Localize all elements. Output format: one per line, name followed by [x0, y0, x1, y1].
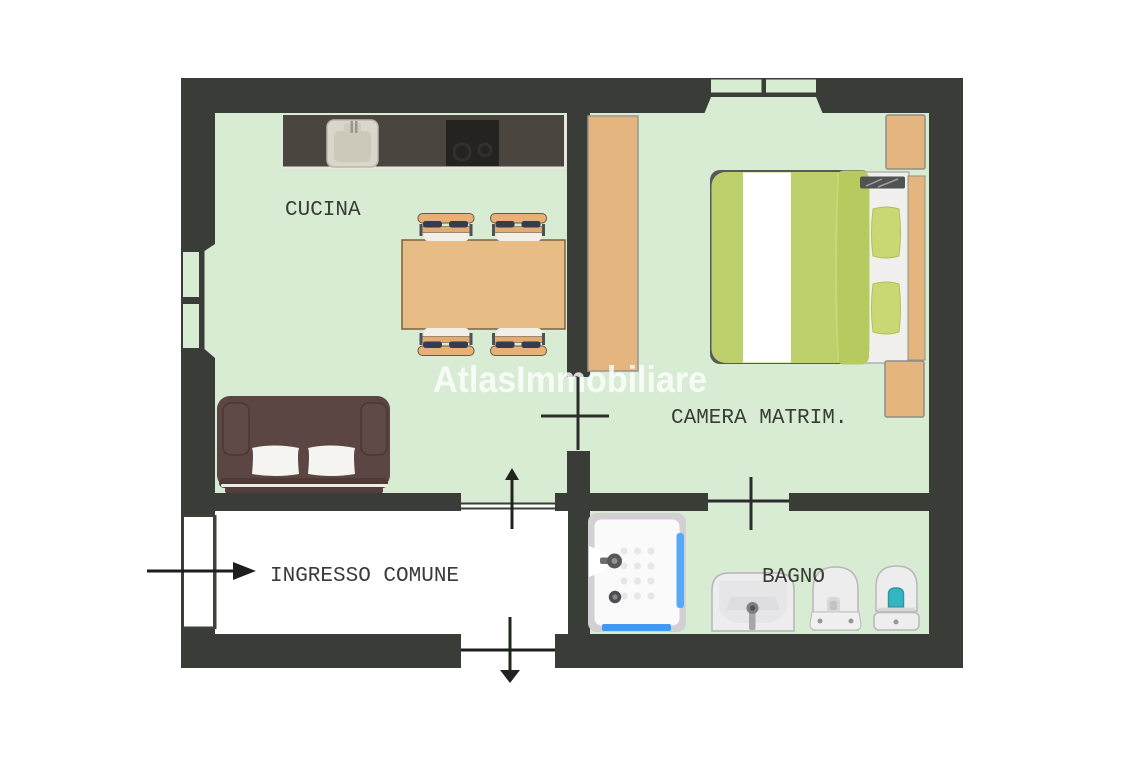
svg-text:CAMERA MATRIM.: CAMERA MATRIM. [671, 407, 847, 430]
svg-text:CUCINA: CUCINA [285, 199, 361, 222]
svg-text:AtlasImmobiliare: AtlasImmobiliare [433, 359, 707, 400]
svg-text:BAGNO: BAGNO [762, 566, 825, 589]
svg-text:INGRESSO COMUNE: INGRESSO COMUNE [270, 565, 459, 588]
